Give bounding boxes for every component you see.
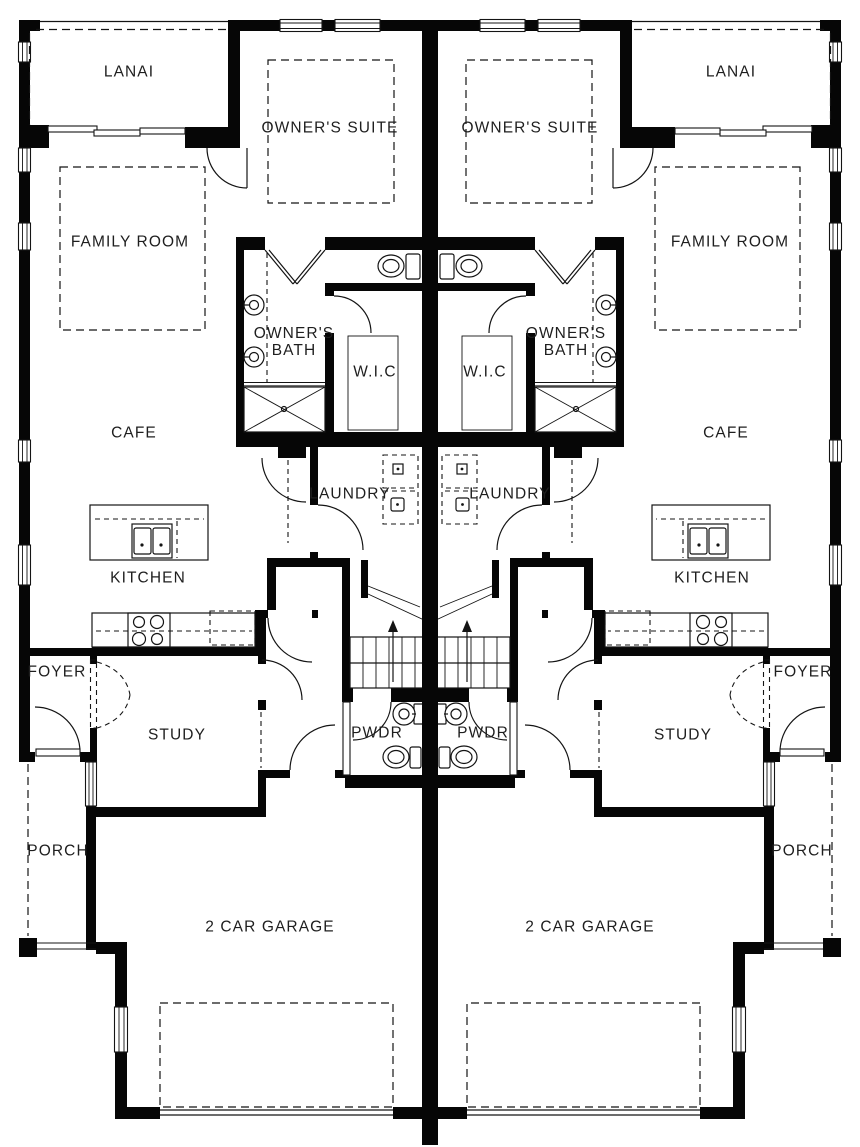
room-label-wic-left: W.I.C [353,364,396,381]
room-label-porch-left: PORCH [27,843,88,860]
room-label-powder-left: PWDR [351,725,403,742]
room-label-foyer-left: FOYER [28,664,87,681]
room-label-study-left: STUDY [148,727,206,744]
unit-left-geometry [19,20,438,1120]
room-label-cafe-left: CAFE [111,425,157,442]
room-label-kitchen-right: KITCHEN [674,570,750,587]
party-wall [422,20,438,1145]
room-label-lanai-right: LANAI [706,64,756,81]
room-label-porch-right: PORCH [771,843,832,860]
room-label-owners-bath-right: OWNER'S BATH [526,325,606,359]
room-label-foyer-right: FOYER [774,664,833,681]
room-label-laundry-left: LAUNDRY [309,486,391,503]
room-label-owners-suite-left: OWNER'S SUITE [262,120,399,137]
room-label-family-room-right: FAMILY ROOM [671,234,789,251]
room-label-study-right: STUDY [654,727,712,744]
room-label-laundry-right: LAUNDRY [469,486,551,503]
room-label-owners-suite-right: OWNER'S SUITE [462,120,599,137]
floor-plan: LANAI OWNER'S SUITE FAMILY ROOM OWNER'S … [0,0,860,1147]
room-label-garage-right: 2 CAR GARAGE [525,919,654,936]
room-label-powder-right: PWDR [457,725,509,742]
room-label-lanai-left: LANAI [104,64,154,81]
room-label-garage-left: 2 CAR GARAGE [205,919,334,936]
room-label-kitchen-left: KITCHEN [110,570,186,587]
room-label-cafe-right: CAFE [703,425,749,442]
room-label-owners-bath-left: OWNER'S BATH [254,325,334,359]
room-label-wic-right: W.I.C [463,364,506,381]
unit-right-geometry [423,20,842,1120]
room-label-family-room-left: FAMILY ROOM [71,234,189,251]
